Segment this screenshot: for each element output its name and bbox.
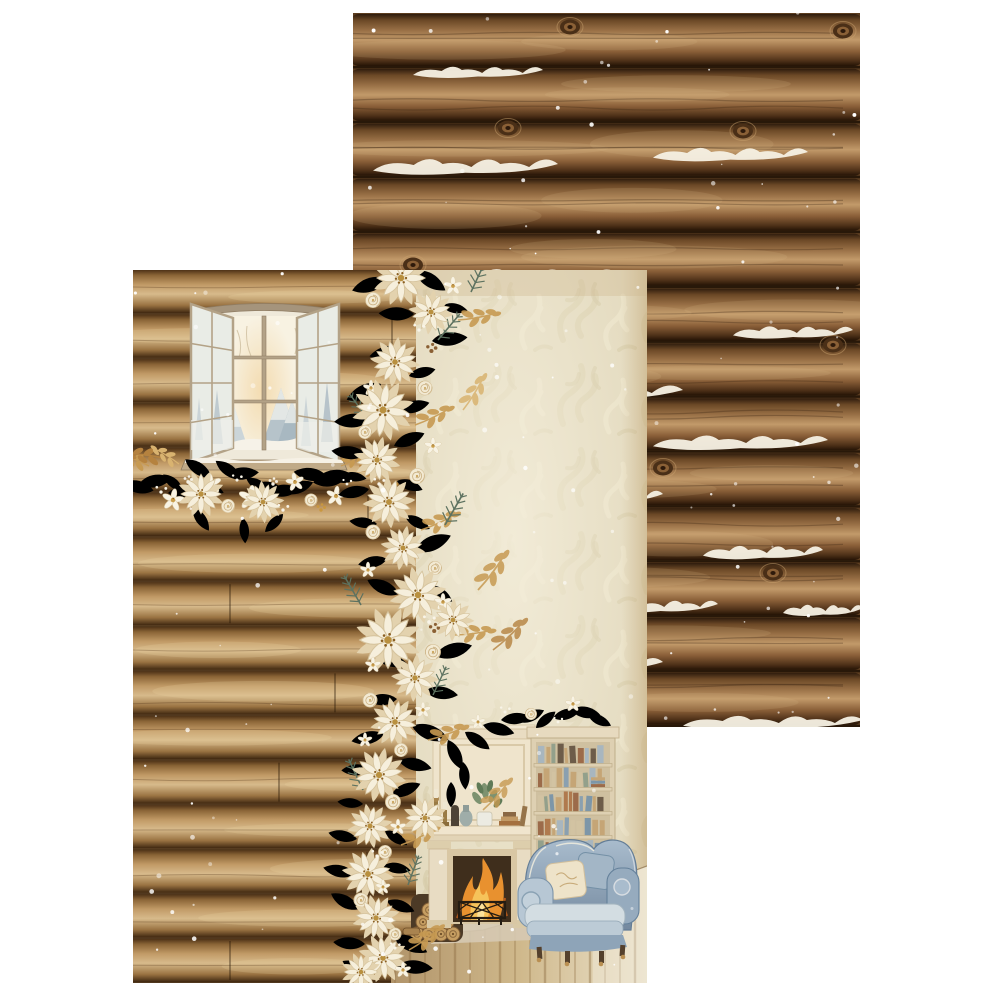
window-sash-right <box>297 304 339 462</box>
product-photo <box>0 0 1000 1000</box>
open-window <box>181 304 347 471</box>
wingback-armchair <box>518 840 639 967</box>
dark-bottle <box>451 805 459 826</box>
winter-scene-paper-sheet <box>133 270 647 983</box>
